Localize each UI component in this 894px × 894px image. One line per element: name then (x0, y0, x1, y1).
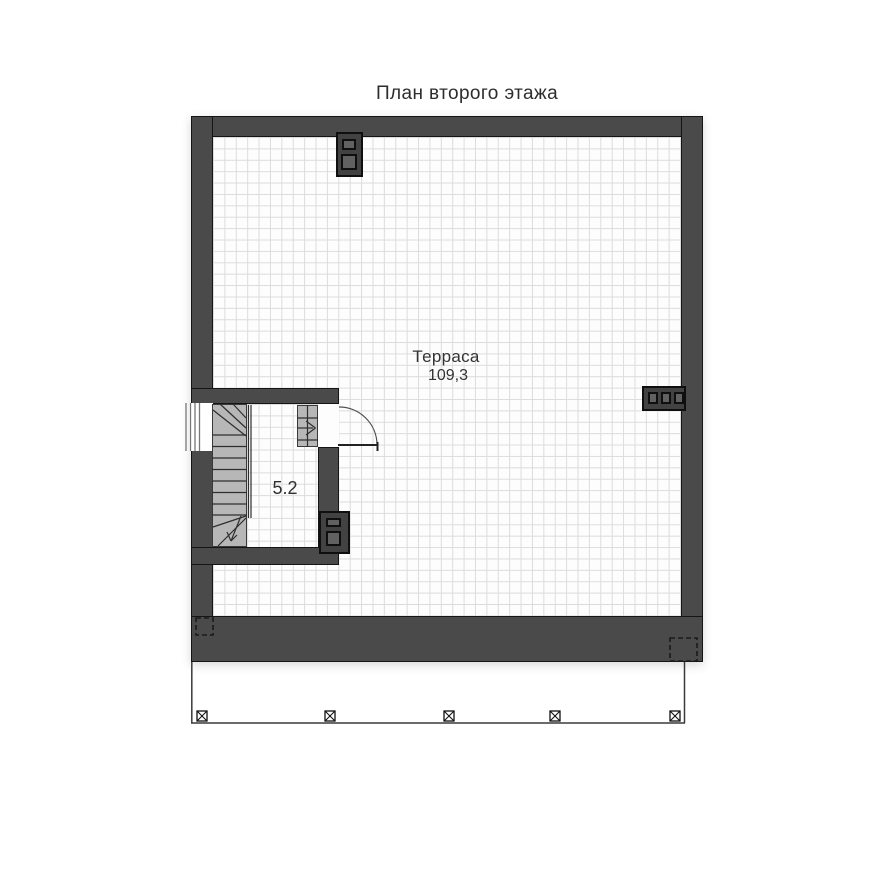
stair-flight-entry (297, 405, 318, 447)
stairwell-wall-top (191, 388, 339, 404)
floor-plan-canvas: План второго этажа (0, 0, 894, 894)
stairwell-wall-bottom (191, 547, 339, 565)
window-opening (189, 403, 213, 451)
terrace-area-label: 109,3 (428, 367, 468, 385)
exterior-wall-top (191, 116, 703, 137)
stair-flue-opening (326, 531, 341, 546)
stair-flue-opening (326, 518, 341, 527)
wall-vent-opening (648, 392, 658, 404)
wall-vent-opening (674, 392, 684, 404)
exterior-wall-bottom (191, 616, 703, 662)
terrace-name-label: Терраса (412, 347, 479, 367)
chimney-flue-opening (342, 139, 356, 150)
chimney-flue-opening (341, 154, 357, 170)
doorway-floor (318, 404, 339, 447)
stair-flight-main (212, 404, 247, 547)
column-marker-icon (197, 711, 680, 721)
porch-edge (191, 662, 685, 723)
page-title: План второго этажа (376, 83, 558, 105)
stairwell-area-label: 5.2 (272, 478, 297, 499)
wall-vent-opening (661, 392, 671, 404)
